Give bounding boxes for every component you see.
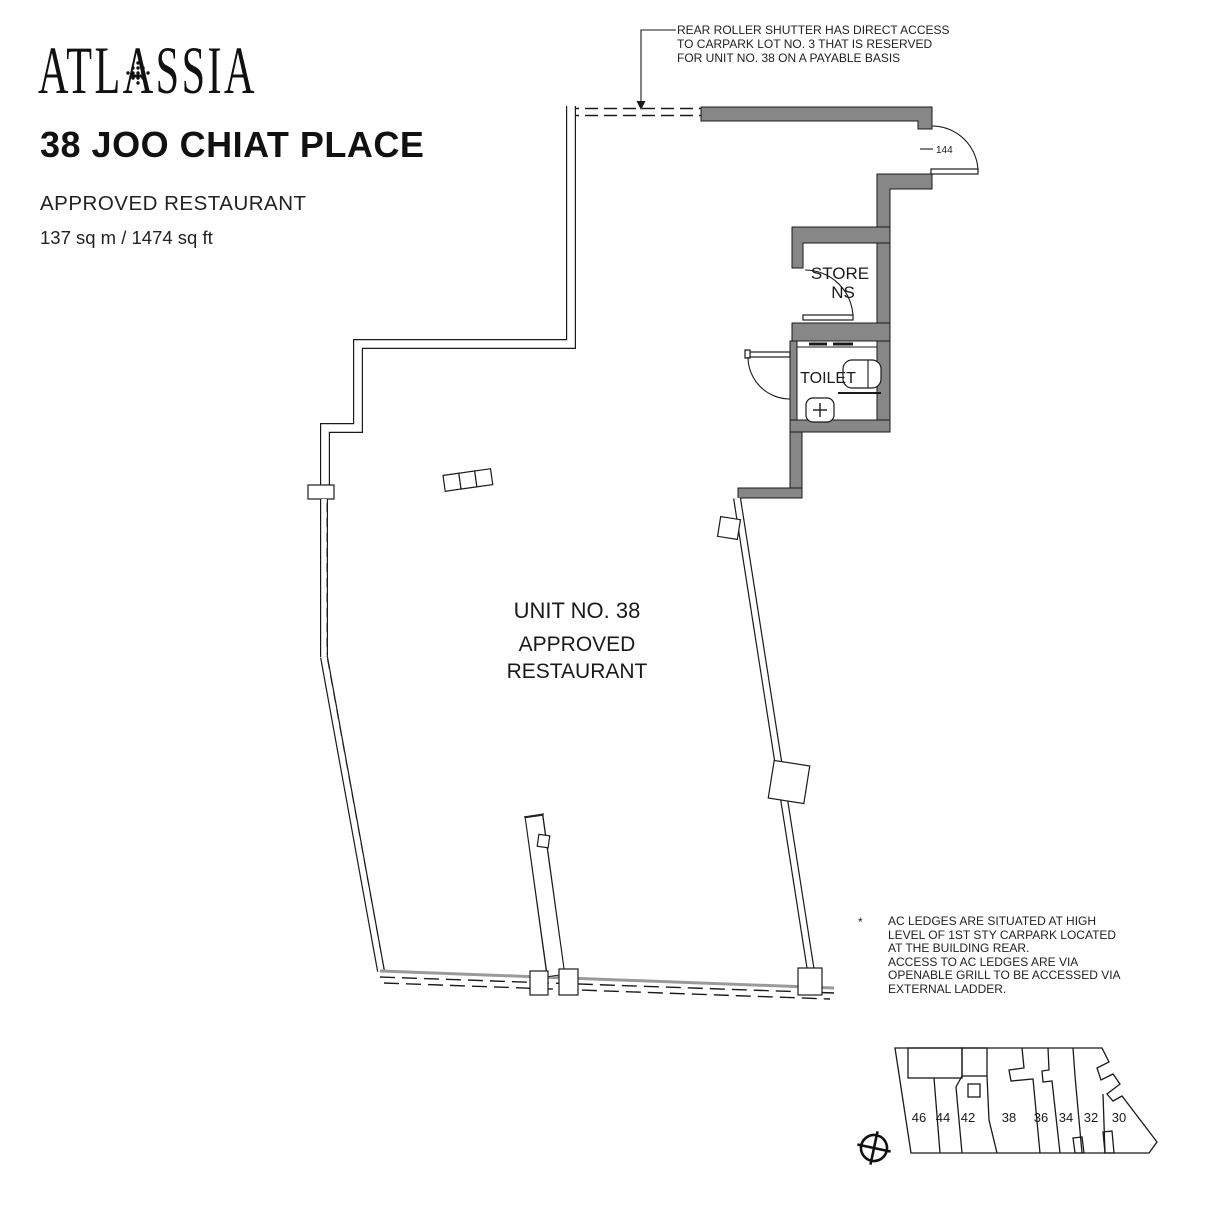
unit-label-line1: UNIT NO. 38 (514, 598, 641, 623)
north-point-icon (854, 1128, 894, 1168)
unit-label-line2: APPROVED (519, 633, 636, 656)
key-plan-unit-42: 42 (961, 1110, 975, 1125)
bottom-boundary-line (380, 971, 834, 999)
toilet-label: TOILET (800, 370, 856, 387)
key-plan-unit-34: 34 (1059, 1110, 1073, 1125)
toilet-door (745, 350, 790, 399)
key-plan-unit-32: 32 (1084, 1110, 1098, 1125)
floor-plan-page: ATLASSIA 38 JOO CHIAT PLACE APPROVED RES… (0, 0, 1215, 1225)
key-plan-unit-36: 36 (1034, 1110, 1048, 1125)
key-plan-unit-44: 44 (936, 1110, 950, 1125)
roller-shutter-dashed-wall (566, 109, 702, 116)
key-plan-unit-46: 46 (912, 1110, 926, 1125)
basin-fixture (806, 398, 834, 422)
door-width-label: 144 (936, 145, 953, 156)
store-label-line1: STORE (811, 264, 869, 283)
key-plan: 46 44 42 38 36 34 32 30 (895, 1048, 1157, 1153)
right-diagonal-wall (718, 498, 822, 995)
column-cluster (443, 469, 493, 492)
unit-label: UNIT NO. 38 APPROVED RESTAURANT (507, 598, 648, 683)
interior-partition-wall (524, 814, 578, 995)
key-plan-unit-30: 30 (1112, 1110, 1126, 1125)
gray-walls (701, 107, 932, 498)
store-label-line2: NS (831, 283, 855, 302)
key-plan-unit-38: 38 (1002, 1110, 1016, 1125)
toilet-top-wall (797, 341, 877, 347)
entrance-door: 144 (920, 126, 978, 174)
unit-label-line3: RESTAURANT (507, 660, 648, 683)
callout-leader-arrow (637, 30, 677, 110)
floor-plan-drawing: 144 ST (0, 0, 1215, 1225)
